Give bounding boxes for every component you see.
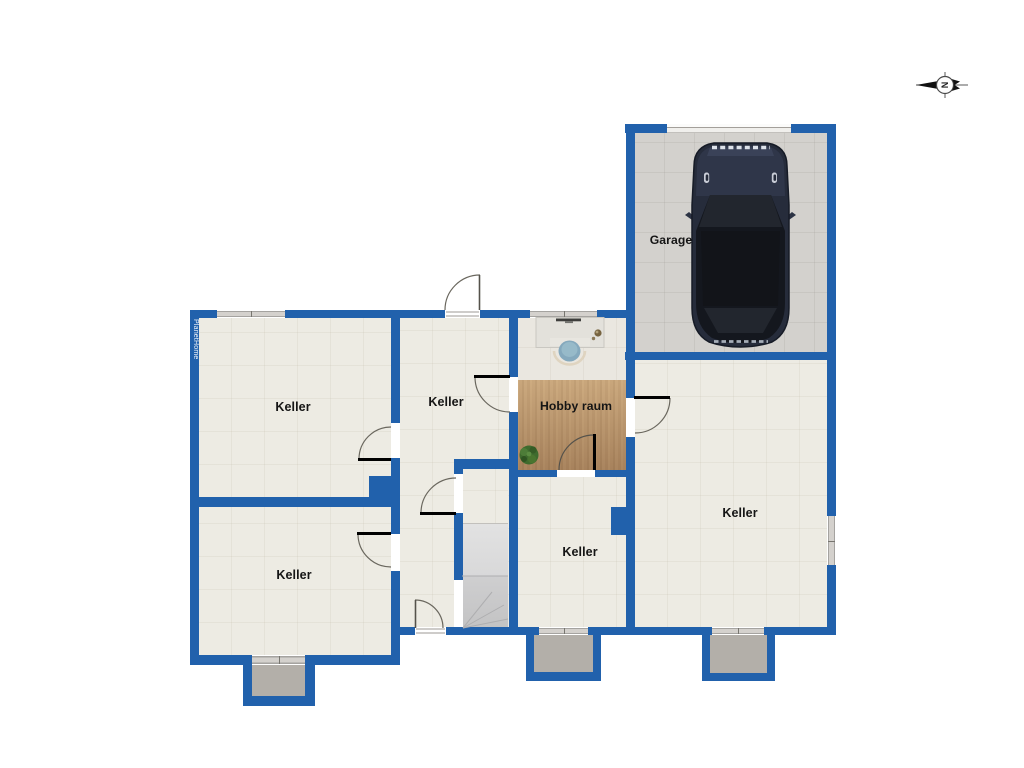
svg-text:N: N (940, 82, 950, 89)
